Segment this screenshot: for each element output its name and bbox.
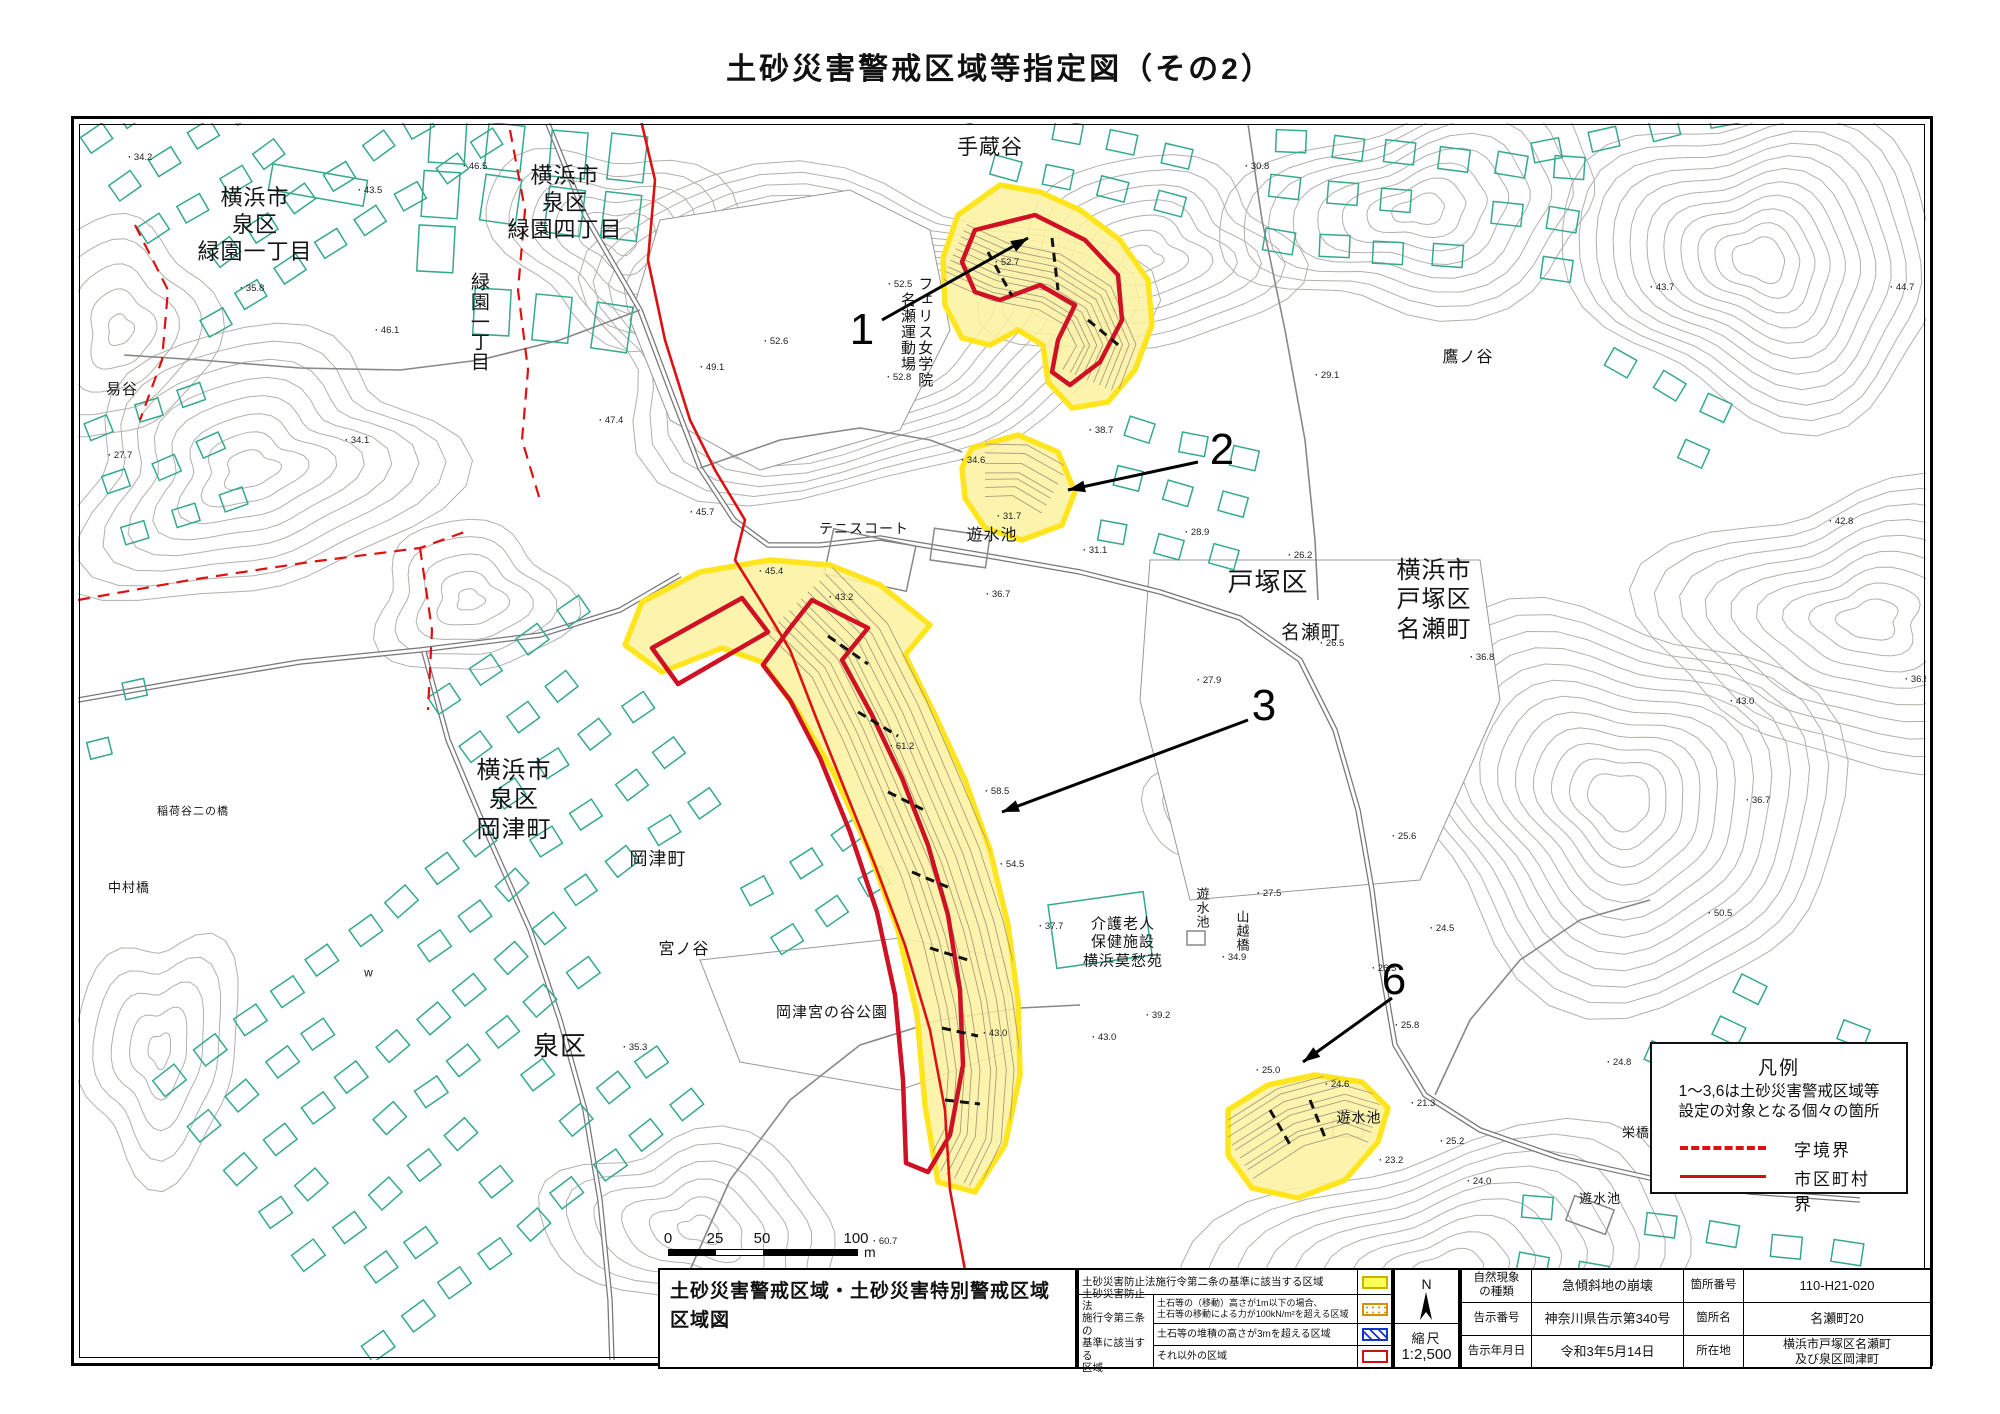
- law-row4-swatch: [1358, 1346, 1391, 1367]
- legend-title: 凡例: [1652, 1053, 1906, 1080]
- law-row2-swatch: [1358, 1295, 1391, 1324]
- info-value: 横浜市戸塚区名瀬町 及び泉区岡津町: [1744, 1336, 1930, 1367]
- law-group-label: 土砂災害防止法 施行令第三条の 基準に該当する 区域: [1079, 1295, 1154, 1367]
- scale-value: 1:2,500: [1395, 1346, 1458, 1363]
- yellow-zone-swatch: [1362, 1276, 1388, 1289]
- legend-row-solid: 市区町村界: [1676, 1165, 1886, 1187]
- info-label: 箇所番号: [1684, 1270, 1744, 1303]
- scale-tick: 25: [707, 1230, 724, 1247]
- sheet-title-box: 土砂災害警戒区域・土砂災害特別警戒区域 区域図: [658, 1268, 1077, 1369]
- info-label: 告示番号: [1462, 1303, 1532, 1336]
- law-row3-text: 土石等の堆積の高さが3mを超える区域: [1154, 1324, 1358, 1346]
- legend-box: 凡例 1～3,6は土砂災害警戒区域等 設定の対象となる個々の箇所 字境界 市区町…: [1650, 1042, 1908, 1194]
- red-outline-swatch: [1362, 1350, 1388, 1363]
- scale-bar: 0 25 50 100 m: [668, 1230, 888, 1264]
- divider: [1395, 1323, 1458, 1324]
- solid-boundary-label: 市区町村界: [1794, 1165, 1886, 1215]
- info-label: 所在地: [1684, 1336, 1744, 1367]
- page-title: 土砂災害警戒区域等指定図（その2）: [0, 44, 2000, 88]
- sheet-title: 土砂災害警戒区域・土砂災害特別警戒区域 区域図: [670, 1278, 1065, 1335]
- legend-row-dashed: 字境界: [1676, 1136, 1886, 1158]
- info-value: 名瀬町20: [1744, 1303, 1930, 1336]
- scale-tick: 50: [754, 1230, 771, 1247]
- law-row3-swatch: [1358, 1324, 1391, 1346]
- info-label: 箇所名: [1684, 1303, 1744, 1336]
- law-legend-table: 土砂災害防止法施行令第二条の基準に該当する区域 土砂災害防止法 施行令第三条の …: [1077, 1268, 1393, 1369]
- law-row2-text: 土石等の（移動）高さが1m以下の場合、 土石等の移動による力が100kN/m²を…: [1154, 1295, 1358, 1324]
- law-row1-swatch: [1358, 1270, 1391, 1295]
- compass-scale-box: N 縮尺 1:2,500: [1393, 1268, 1460, 1369]
- blue-hatch-swatch: [1362, 1328, 1388, 1341]
- sheet-frame-inner: [79, 124, 1925, 1358]
- scale-bar-strip: [668, 1249, 858, 1256]
- scale-tick: 0: [664, 1230, 672, 1247]
- solid-boundary-sample: [1680, 1175, 1766, 1178]
- info-label: 自然現象 の種類: [1462, 1270, 1532, 1303]
- law-row4-text: それ以外の区域: [1154, 1346, 1358, 1367]
- scale-label: 縮尺: [1395, 1328, 1458, 1347]
- orange-dots-swatch: [1362, 1303, 1388, 1316]
- info-value: 110-H21-020: [1744, 1270, 1930, 1303]
- map-sheet: 土砂災害警戒区域等指定図（その2） 横浜市 泉区 緑園一丁目横浜市 泉区 緑園四…: [0, 0, 2000, 1414]
- dashed-boundary-sample: [1680, 1146, 1766, 1150]
- info-label: 告示年月日: [1462, 1336, 1532, 1367]
- legend-note: 1～3,6は土砂災害警戒区域等 設定の対象となる個々の箇所: [1652, 1082, 1906, 1122]
- info-value: 令和3年5月14日: [1532, 1336, 1684, 1367]
- notice-info-table: 自然現象 の種類 急傾斜地の崩壊 箇所番号 110-H21-020 告示番号 神…: [1460, 1268, 1932, 1369]
- info-value: 急傾斜地の崩壊: [1532, 1270, 1684, 1303]
- info-value: 神奈川県告示第340号: [1532, 1303, 1684, 1336]
- scale-unit: m: [864, 1244, 876, 1260]
- dashed-boundary-label: 字境界: [1794, 1136, 1851, 1161]
- north-arrow-icon: [1395, 1290, 1458, 1322]
